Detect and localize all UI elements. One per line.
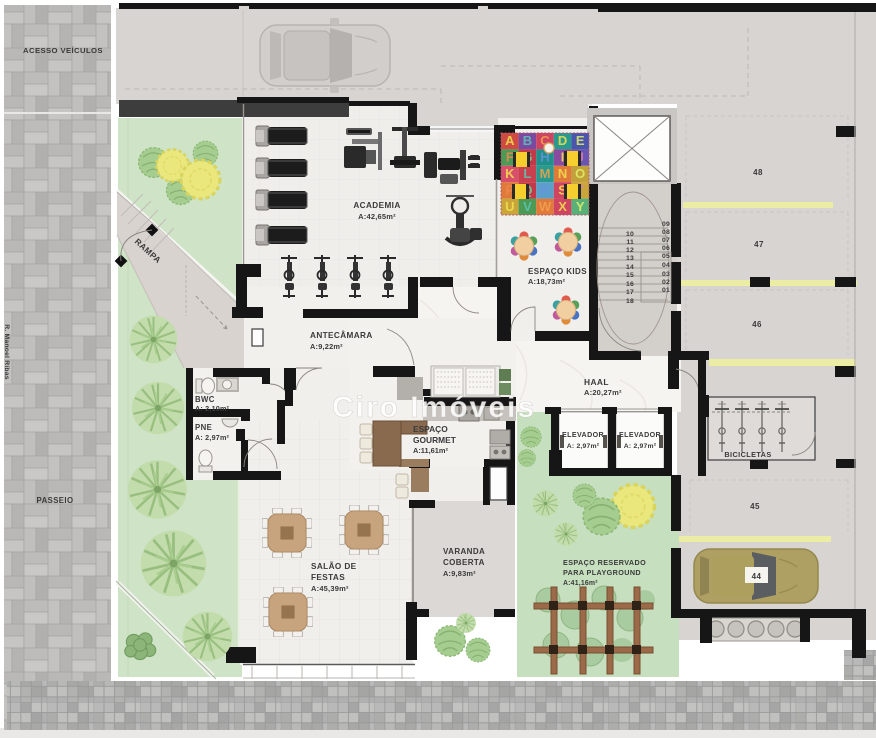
- svg-text:03: 03: [662, 271, 670, 278]
- svg-text:BICICLETAS: BICICLETAS: [724, 450, 771, 459]
- svg-text:08: 08: [662, 229, 670, 236]
- svg-text:PASSEIO: PASSEIO: [37, 496, 74, 505]
- svg-text:U: U: [505, 199, 514, 214]
- svg-text:09: 09: [662, 221, 670, 228]
- svg-text:A:9,83m²: A:9,83m²: [443, 569, 476, 578]
- svg-text:F: F: [506, 150, 514, 165]
- svg-text:K: K: [505, 166, 515, 181]
- svg-text:ESPAÇO KIDS: ESPAÇO KIDS: [528, 267, 587, 276]
- svg-text:13: 13: [626, 255, 634, 262]
- svg-text:V: V: [523, 199, 532, 214]
- svg-text:I: I: [561, 150, 565, 165]
- svg-text:05: 05: [662, 253, 670, 260]
- svg-text:W: W: [539, 199, 552, 214]
- svg-text:L: L: [523, 166, 531, 181]
- svg-text:N: N: [558, 166, 567, 181]
- svg-text:E: E: [576, 133, 585, 148]
- svg-text:48: 48: [753, 168, 763, 177]
- svg-text:GOURMET: GOURMET: [413, 435, 457, 445]
- svg-text:BWC: BWC: [195, 395, 215, 404]
- svg-text:06: 06: [662, 245, 670, 252]
- svg-text:VARANDA: VARANDA: [443, 547, 485, 556]
- svg-text:A: 2,97m²: A: 2,97m²: [624, 443, 657, 450]
- svg-text:ESPAÇO RESERVADO: ESPAÇO RESERVADO: [563, 558, 646, 567]
- svg-text:B: B: [523, 133, 532, 148]
- svg-text:04: 04: [662, 262, 670, 269]
- svg-text:A:18,73m²: A:18,73m²: [528, 277, 565, 286]
- svg-text:SALÃO DE: SALÃO DE: [311, 561, 357, 571]
- svg-text:46: 46: [752, 320, 762, 329]
- svg-text:A:42,65m²: A:42,65m²: [358, 212, 396, 221]
- svg-text:Y: Y: [576, 199, 585, 214]
- svg-text:PARA PLAYGROUND: PARA PLAYGROUND: [563, 568, 641, 577]
- svg-text:A: A: [505, 133, 515, 148]
- svg-text:18: 18: [626, 298, 634, 305]
- svg-text:14: 14: [626, 264, 634, 271]
- svg-text:10: 10: [626, 231, 634, 238]
- svg-text:02: 02: [662, 279, 670, 286]
- svg-text:FESTAS: FESTAS: [311, 573, 345, 582]
- svg-text:01: 01: [662, 287, 670, 294]
- svg-text:R: R: [540, 182, 550, 197]
- svg-text:M: M: [540, 166, 551, 181]
- svg-text:A:45,39m²: A:45,39m²: [311, 584, 349, 593]
- svg-text:ACADEMIA: ACADEMIA: [353, 201, 400, 210]
- svg-text:07: 07: [662, 237, 670, 244]
- svg-text:ELEVADOR: ELEVADOR: [562, 431, 604, 439]
- svg-text:D: D: [558, 133, 567, 148]
- svg-text:X: X: [558, 199, 567, 214]
- svg-text:PNE: PNE: [195, 423, 212, 432]
- svg-text:A: 2,97m²: A: 2,97m²: [567, 443, 600, 450]
- svg-text:A:9,22m²: A:9,22m²: [310, 342, 343, 351]
- svg-text:A:20,27m²: A:20,27m²: [584, 388, 622, 397]
- svg-text:45: 45: [750, 502, 760, 511]
- svg-text:ANTECÂMARA: ANTECÂMARA: [310, 329, 373, 340]
- svg-text:ESPAÇO: ESPAÇO: [413, 424, 448, 434]
- svg-text:17: 17: [626, 289, 634, 296]
- svg-text:A: 2,10m²: A: 2,10m²: [195, 404, 230, 413]
- svg-text:A: 2,97m²: A: 2,97m²: [195, 433, 230, 442]
- svg-text:A:11,61m²: A:11,61m²: [413, 446, 448, 455]
- svg-text:Ciro Imóveis: Ciro Imóveis: [332, 391, 536, 424]
- svg-text:ELEVADOR: ELEVADOR: [619, 431, 661, 439]
- svg-text:A:41,16m²: A:41,16m²: [563, 580, 598, 587]
- svg-text:11: 11: [626, 239, 634, 246]
- svg-text:47: 47: [754, 240, 764, 249]
- svg-text:COBERTA: COBERTA: [443, 558, 485, 567]
- svg-text:15: 15: [626, 272, 634, 279]
- svg-text:R. Manoel Ribas: R. Manoel Ribas: [3, 324, 10, 380]
- svg-text:16: 16: [626, 281, 634, 288]
- svg-text:O: O: [575, 166, 585, 181]
- svg-text:12: 12: [626, 247, 634, 254]
- svg-text:ACESSO VEÍCULOS: ACESSO VEÍCULOS: [23, 46, 103, 55]
- svg-text:44: 44: [752, 572, 762, 581]
- svg-text:HAAL: HAAL: [584, 377, 609, 387]
